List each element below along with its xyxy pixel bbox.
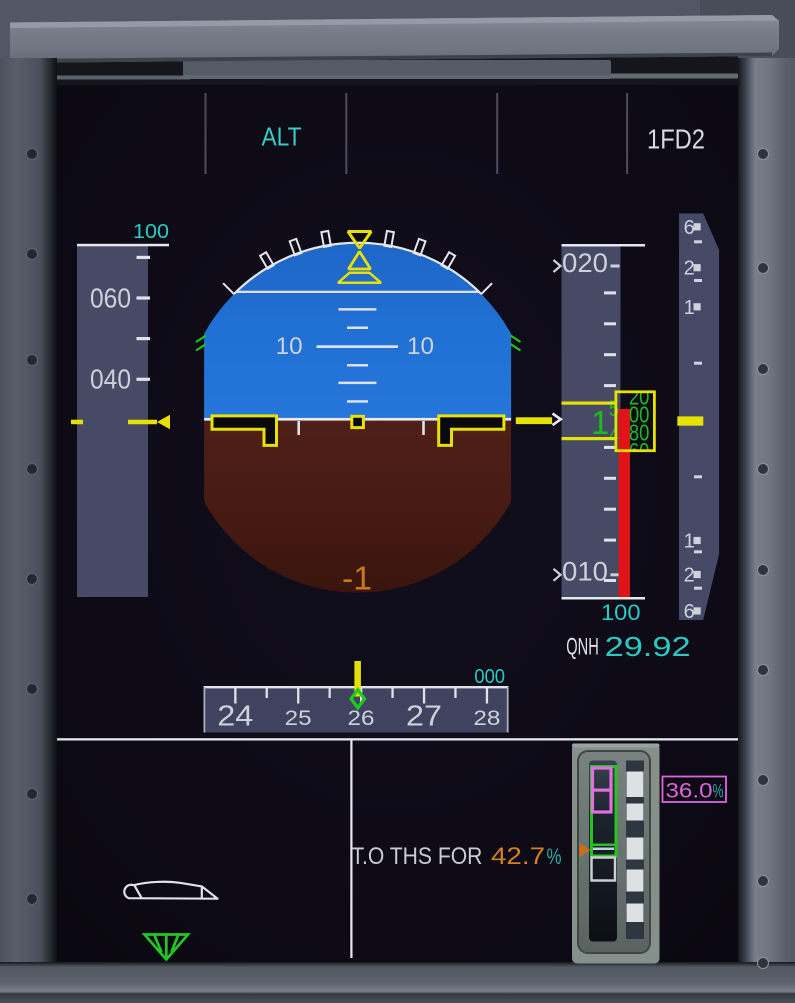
svg-text:1: 1 [684,531,695,553]
svg-text:010: 010 [562,557,608,587]
svg-text:6: 6 [684,217,695,239]
svg-text:42.7: 42.7 [491,843,545,870]
svg-text:%: % [547,844,562,869]
svg-text:100: 100 [133,221,169,243]
svg-text:28: 28 [473,706,500,730]
svg-text:1: 1 [591,404,609,441]
svg-text:QNH: QNH [566,633,599,660]
svg-text:5: 5 [609,396,620,421]
svg-text:100: 100 [601,600,641,625]
svg-text:1FD2: 1FD2 [647,123,705,154]
svg-text:6: 6 [684,601,695,623]
svg-text:ALT: ALT [262,123,302,151]
svg-text:27: 27 [406,701,442,733]
svg-text:36.0: 36.0 [666,780,713,803]
svg-text:24: 24 [217,701,253,733]
svg-text:060: 060 [90,282,131,313]
svg-text:000: 000 [474,666,505,688]
svg-text:020: 020 [562,248,608,278]
svg-text:2: 2 [684,565,695,587]
svg-text:040: 040 [90,364,131,395]
svg-text:25: 25 [285,706,312,730]
svg-text:1: 1 [684,297,695,319]
svg-text:%: % [713,782,724,803]
svg-text:10: 10 [276,333,303,360]
svg-text:10: 10 [407,333,434,360]
svg-text:26: 26 [348,706,375,730]
svg-text:-1: -1 [342,560,372,597]
svg-text:T.O THS FOR: T.O THS FOR [351,843,482,870]
svg-text:4: 4 [609,422,620,447]
svg-text:2: 2 [684,258,695,280]
svg-text:29.92: 29.92 [605,631,691,662]
